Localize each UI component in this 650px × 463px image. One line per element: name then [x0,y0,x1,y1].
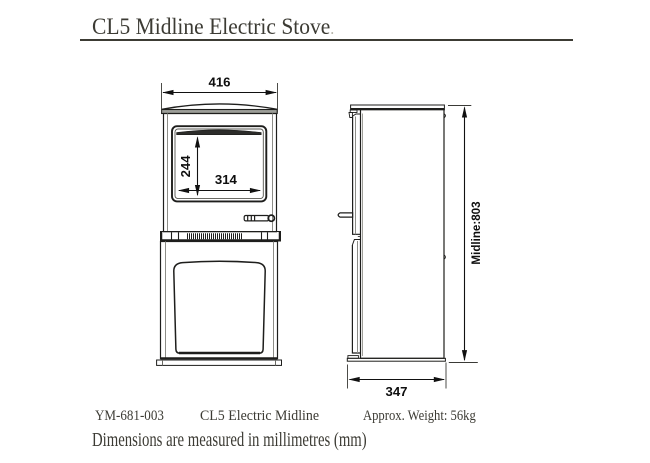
svg-text:416: 416 [208,75,230,90]
svg-text:347: 347 [385,384,407,399]
svg-text:244: 244 [178,155,193,178]
svg-text:314: 314 [215,172,238,187]
svg-text:Midline:803: Midline:803 [470,201,483,265]
